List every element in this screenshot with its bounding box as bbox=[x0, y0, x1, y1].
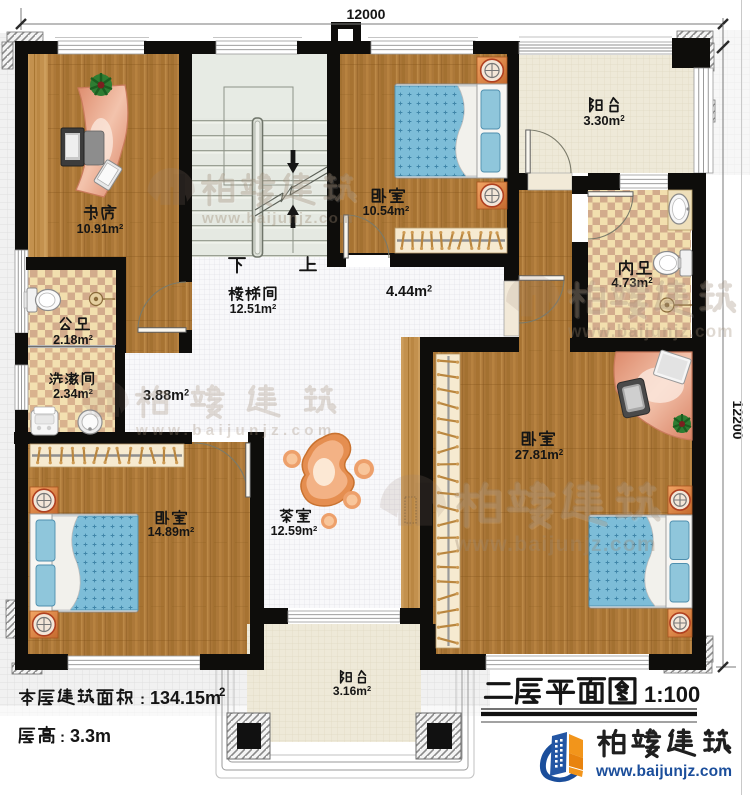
svg-text:3.16m2: 3.16m2 bbox=[333, 684, 371, 698]
svg-text::: : bbox=[140, 691, 145, 708]
svg-text:10.54m2: 10.54m2 bbox=[363, 204, 410, 218]
svg-text:14.89m2: 14.89m2 bbox=[148, 525, 195, 539]
svg-text:27.81m2: 27.81m2 bbox=[515, 447, 564, 462]
svg-text:www.baijunjz.com: www.baijunjz.com bbox=[454, 533, 656, 556]
svg-text:12.51m2: 12.51m2 bbox=[230, 302, 277, 316]
svg-text:www.baijunjz.com: www.baijunjz.com bbox=[201, 210, 353, 227]
svg-text:10.91m2: 10.91m2 bbox=[77, 222, 124, 236]
svg-text:4.44m2: 4.44m2 bbox=[386, 283, 432, 300]
svg-text:1:100: 1:100 bbox=[644, 682, 700, 707]
svg-text:3.3m: 3.3m bbox=[70, 726, 111, 746]
svg-text::: : bbox=[60, 729, 65, 746]
svg-text:2.18m2: 2.18m2 bbox=[53, 333, 93, 347]
svg-text:12.59m2: 12.59m2 bbox=[271, 524, 318, 538]
svg-text:12200: 12200 bbox=[730, 401, 746, 440]
svg-text:www.baijunjz.com: www.baijunjz.com bbox=[595, 763, 732, 780]
svg-text:134.15m: 134.15m bbox=[150, 688, 221, 708]
svg-text:www.baijunjz.com: www.baijunjz.com bbox=[567, 321, 733, 341]
svg-text:2: 2 bbox=[219, 687, 225, 699]
svg-text:3.30m2: 3.30m2 bbox=[583, 113, 625, 128]
svg-text:12000: 12000 bbox=[347, 6, 386, 22]
